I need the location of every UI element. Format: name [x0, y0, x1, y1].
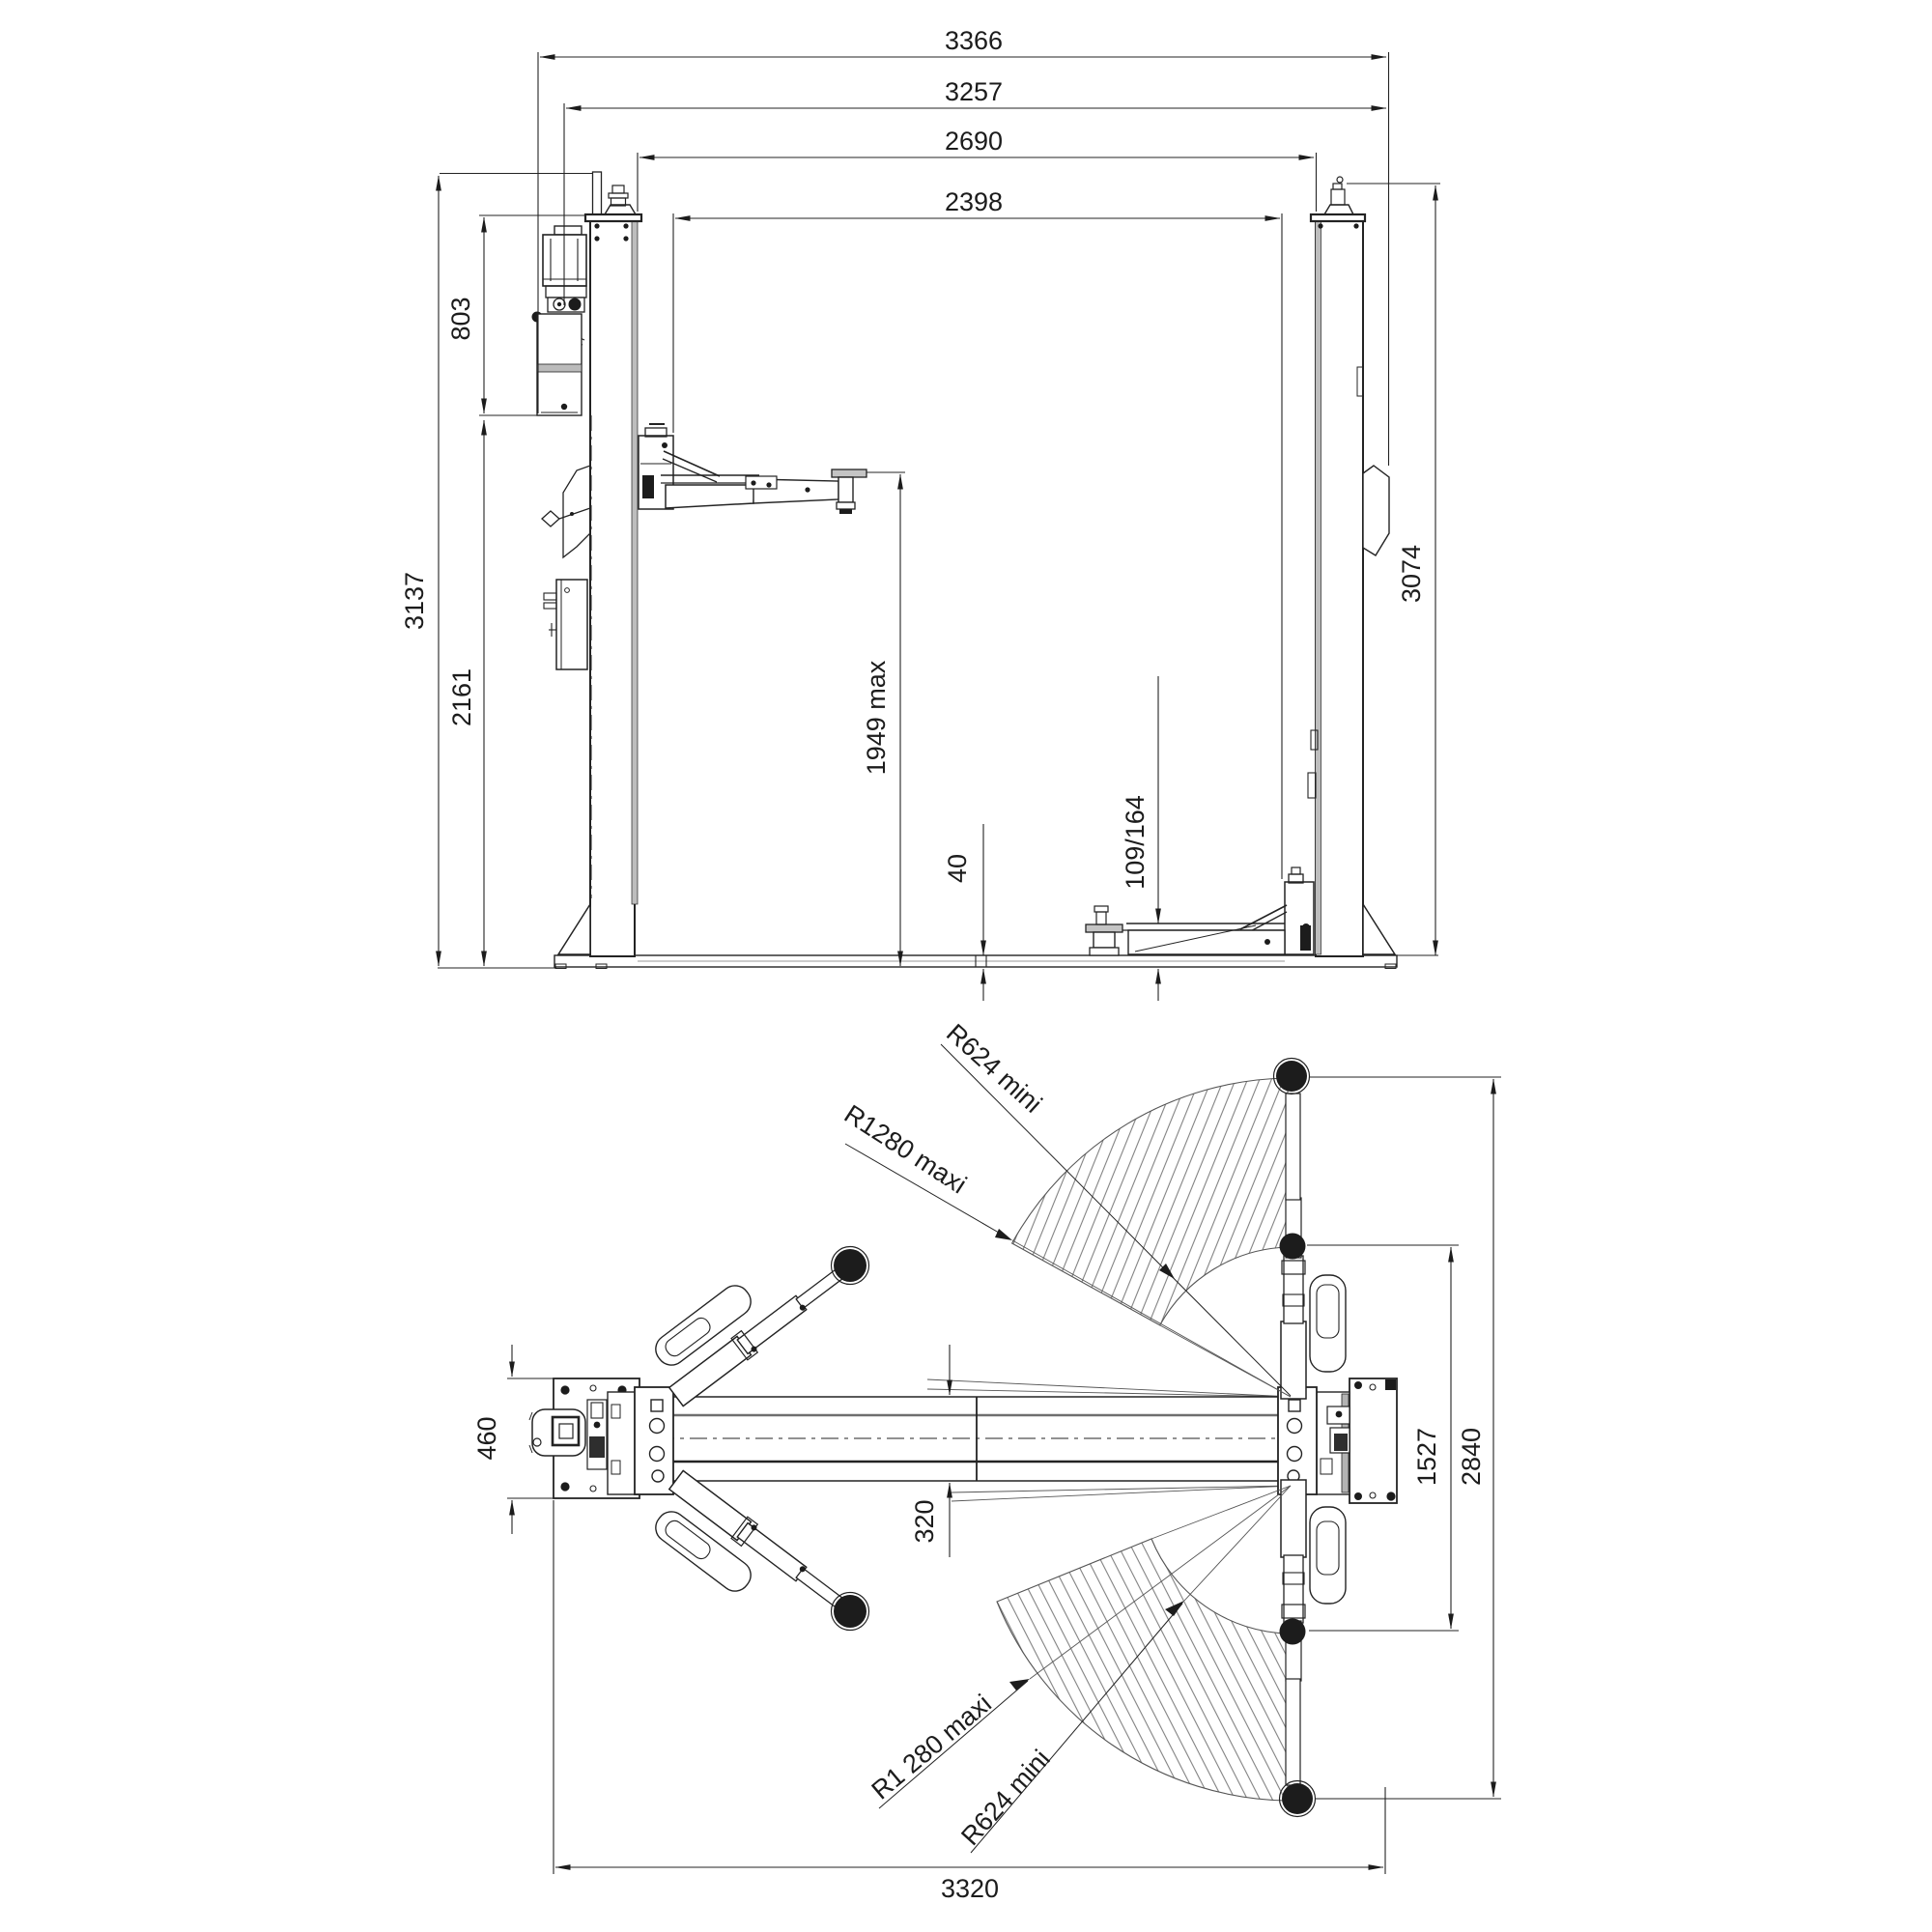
svg-text:3257: 3257 [945, 77, 1003, 106]
svg-text:2840: 2840 [1457, 1428, 1486, 1486]
svg-text:3074: 3074 [1397, 545, 1426, 603]
svg-text:320: 320 [910, 1499, 939, 1543]
svg-text:3320: 3320 [941, 1874, 999, 1903]
svg-text:R624 mini: R624 mini [941, 1018, 1047, 1119]
svg-text:109/164: 109/164 [1121, 795, 1150, 890]
svg-text:2398: 2398 [945, 187, 1003, 216]
svg-text:460: 460 [472, 1416, 501, 1460]
svg-text:3366: 3366 [945, 26, 1003, 55]
svg-text:803: 803 [446, 297, 475, 340]
svg-text:2161: 2161 [447, 668, 476, 726]
svg-text:R624 mini: R624 mini [955, 1745, 1056, 1851]
svg-text:2690: 2690 [945, 127, 1003, 156]
svg-text:1527: 1527 [1412, 1428, 1441, 1486]
svg-text:3137: 3137 [400, 572, 429, 630]
svg-text:40: 40 [943, 854, 972, 883]
svg-text:1949 max: 1949 max [862, 660, 891, 775]
svg-text:R1280 maxi: R1280 maxi [839, 1099, 972, 1200]
svg-text:R1 280 maxi: R1 280 maxi [867, 1689, 997, 1804]
